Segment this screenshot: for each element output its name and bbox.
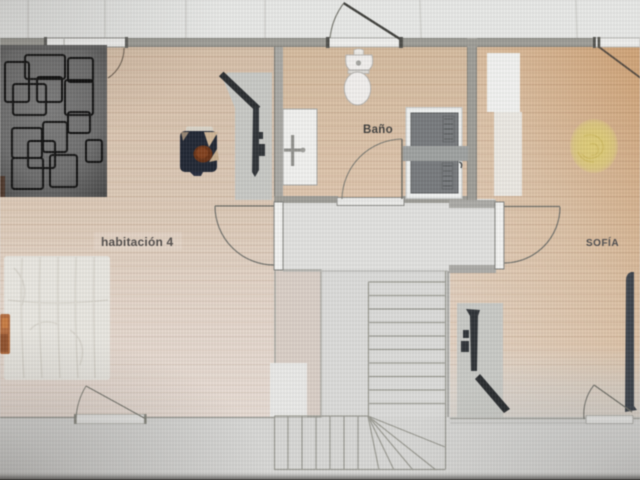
svg-text:SOFÍA: SOFÍA bbox=[586, 236, 619, 249]
svg-text:Baño: Baño bbox=[363, 124, 393, 136]
svg-text:habitación 4: habitación 4 bbox=[101, 235, 174, 249]
